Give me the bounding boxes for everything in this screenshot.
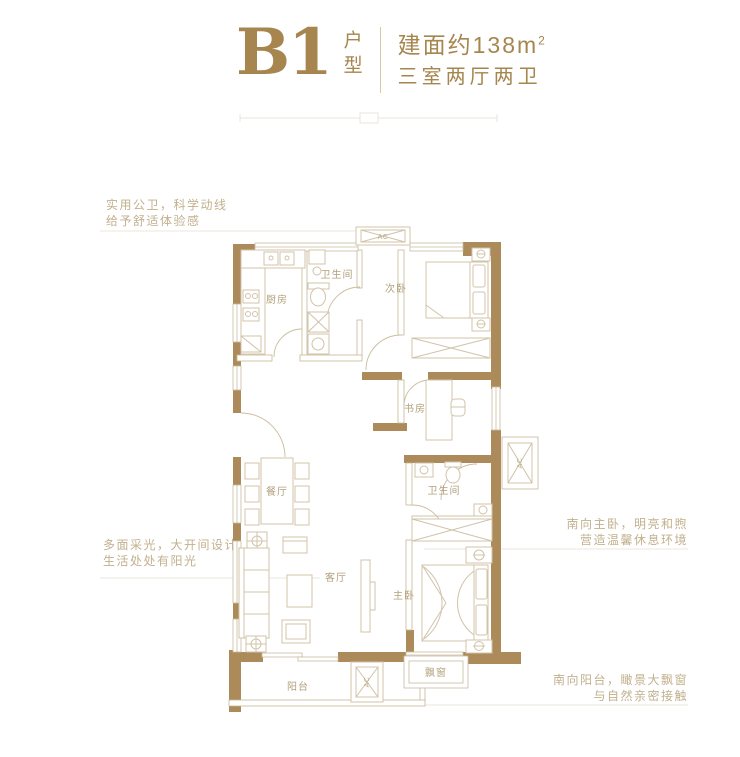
room-label-study: 书房 [404, 402, 426, 415]
ac-label-balcony: AC [364, 677, 371, 688]
floor-plan: 厨房 卫生间 次卧 书房 餐厅 客厅 卫生间 主卧 飘窗 阳台 AC AC AC [0, 0, 740, 757]
room-label-bath-top: 卫生间 [321, 268, 354, 281]
room-label-dining: 餐厅 [266, 485, 288, 498]
annotation-leader-lines [100, 231, 688, 705]
floorplan-page: B1 户型 建面约138m2 三室两厅两卫 实用公卫，科学动线 给予舒适体验感 … [0, 0, 740, 757]
room-label-bath-bottom: 卫生间 [428, 484, 461, 497]
bedroom2-furniture [412, 248, 490, 358]
room-label-kitchen: 厨房 [266, 293, 288, 306]
room-label-living: 客厅 [325, 571, 347, 584]
room-label-bedroom2: 次卧 [385, 282, 407, 295]
room-label-balcony: 阳台 [287, 680, 309, 693]
living-furniture [239, 537, 375, 652]
room-label-bay-window: 飘窗 [425, 666, 447, 679]
ac-label-top: AC [378, 234, 389, 241]
study-furniture [426, 380, 465, 440]
ac-label-right: AC [517, 458, 524, 469]
dining-furniture [245, 458, 309, 550]
room-label-master: 主卧 [393, 589, 415, 602]
dimension-line [240, 113, 497, 123]
master-furniture [412, 519, 492, 653]
bathroom-top-fixtures [308, 250, 329, 354]
